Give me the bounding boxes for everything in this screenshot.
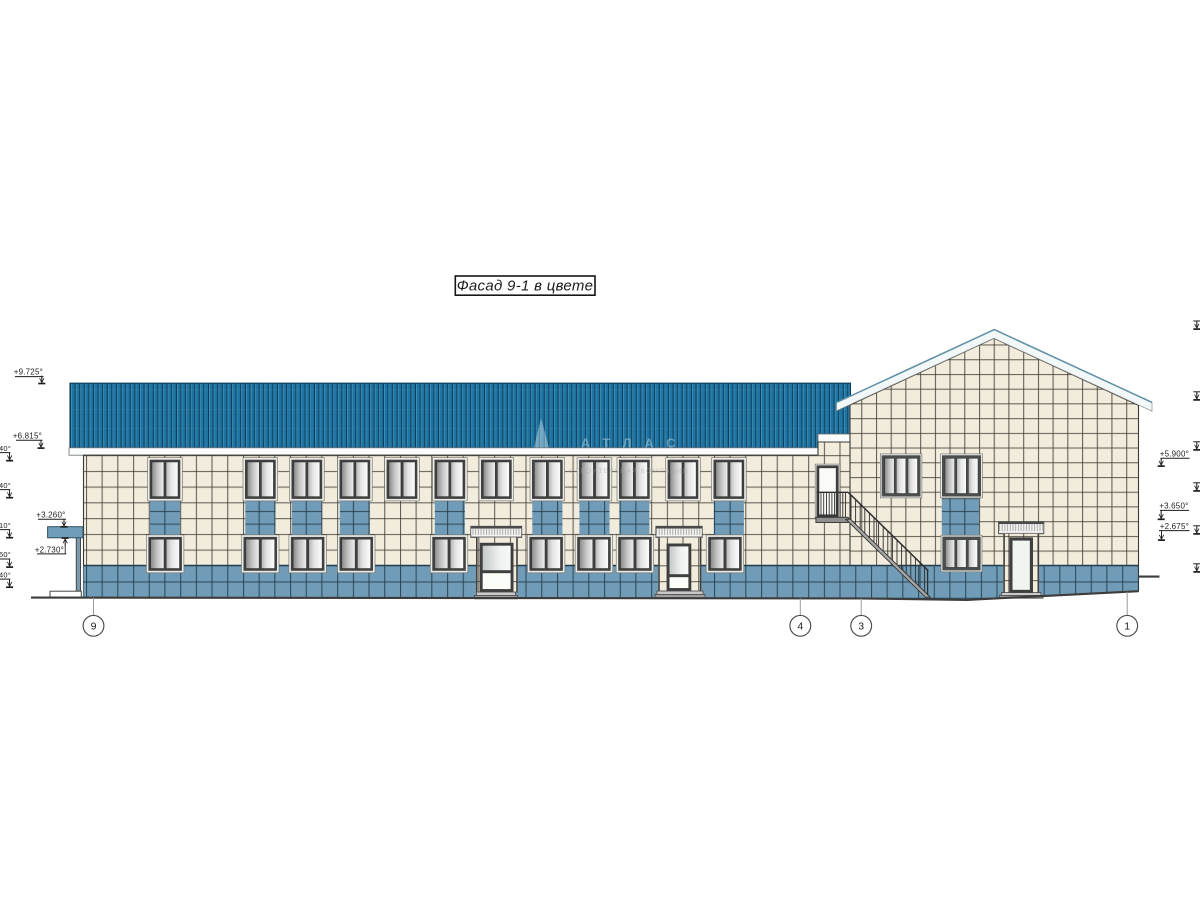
svg-text:3: 3 bbox=[858, 621, 864, 633]
svg-text:+1.140°: +1.140° bbox=[0, 570, 11, 579]
svg-text:+9.725°: +9.725° bbox=[14, 368, 43, 377]
svg-text:+5.900°: +5.900° bbox=[1160, 450, 1189, 459]
svg-text:АТЛАС: АТЛАС bbox=[581, 437, 688, 451]
svg-text:4: 4 bbox=[797, 621, 803, 633]
svg-text:+2.675°: +2.675° bbox=[1160, 522, 1189, 531]
svg-text:+4.240°: +4.240° bbox=[0, 481, 11, 490]
svg-text:СТРОИТЕЛЬНАЯ КОМПАНИЯ: СТРОИТЕЛЬНАЯ КОМПАНИЯ bbox=[569, 468, 688, 475]
svg-text:+2.730°: +2.730° bbox=[35, 545, 64, 554]
svg-text:+3.260°: +3.260° bbox=[36, 510, 65, 519]
svg-text:9: 9 bbox=[91, 621, 97, 633]
svg-text:Фасад 9-1 в цвете: Фасад 9-1 в цвете bbox=[457, 278, 594, 295]
svg-text:+5.140°: +5.140° bbox=[0, 444, 11, 453]
svg-text:+6.815°: +6.815° bbox=[13, 431, 42, 440]
svg-text:+2.350°: +2.350° bbox=[0, 550, 11, 559]
svg-text:+3.650°: +3.650° bbox=[1159, 502, 1188, 511]
svg-text:1: 1 bbox=[1124, 621, 1130, 633]
svg-text:+3.210°: +3.210° bbox=[0, 521, 11, 530]
